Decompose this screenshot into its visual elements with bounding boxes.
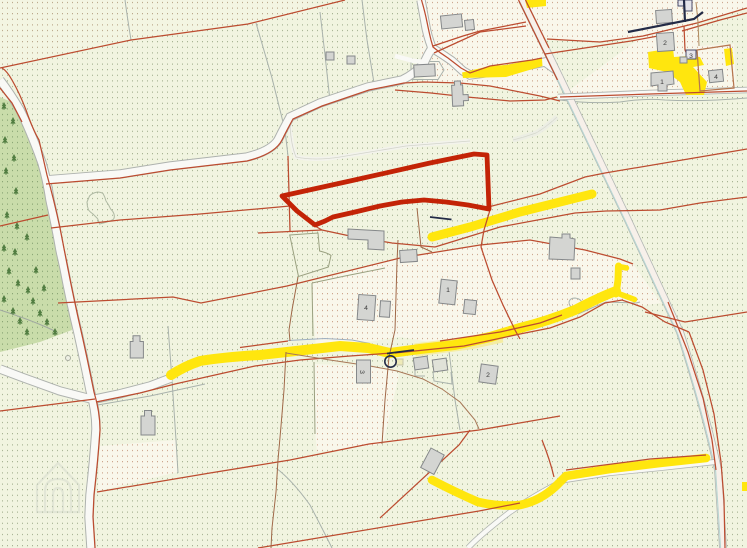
svg-text:1: 1 bbox=[660, 79, 664, 86]
svg-text:2: 2 bbox=[663, 40, 667, 47]
svg-text:3: 3 bbox=[358, 370, 365, 374]
svg-text:4: 4 bbox=[364, 305, 368, 312]
svg-text:4: 4 bbox=[714, 74, 718, 81]
svg-text:1: 1 bbox=[446, 287, 450, 294]
svg-text:3: 3 bbox=[689, 53, 693, 60]
svg-text:2: 2 bbox=[486, 372, 490, 379]
